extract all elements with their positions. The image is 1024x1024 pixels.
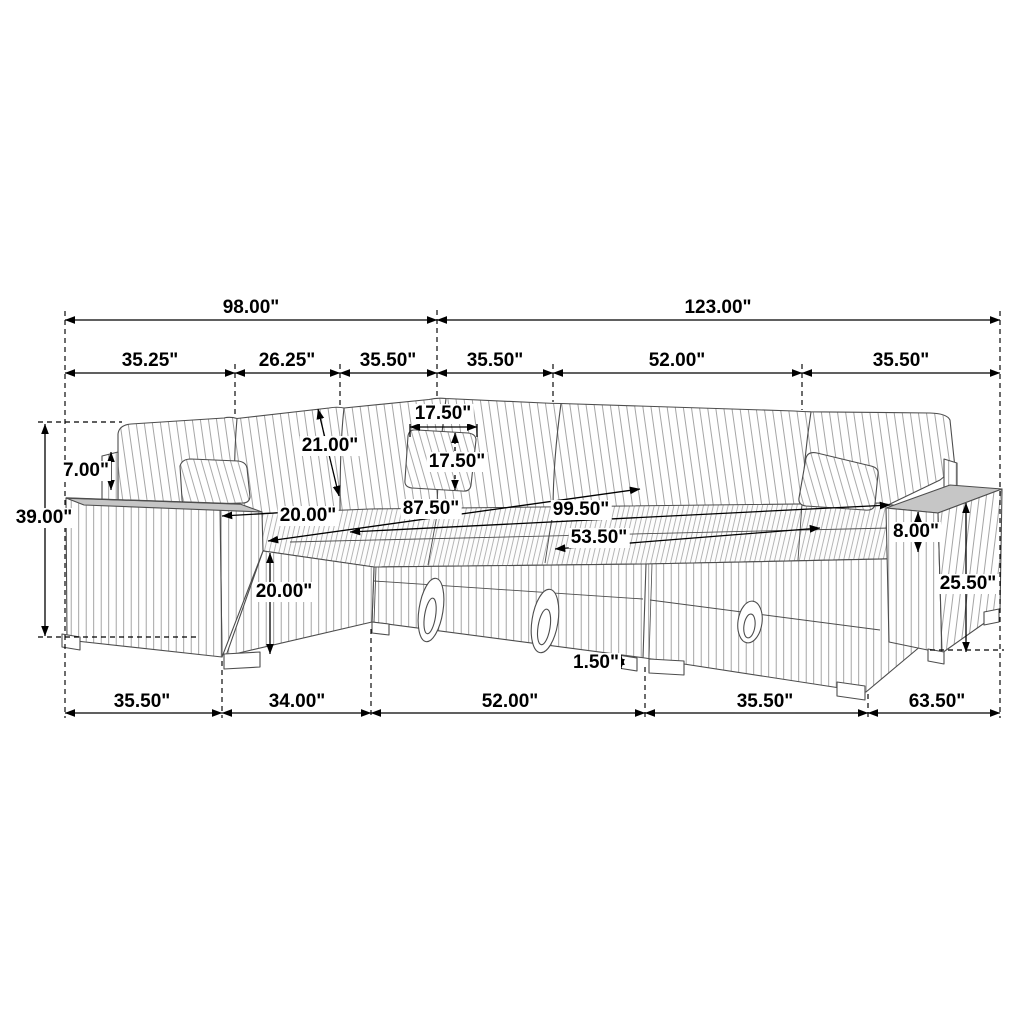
right-arm-front	[886, 508, 942, 653]
sofa-drawing	[62, 398, 1002, 700]
left-arm-front	[66, 498, 222, 657]
dimension-diagram: 98.00"123.00"35.25"26.25"35.50"35.50"52.…	[0, 0, 1024, 1024]
right-arm-side	[938, 489, 1002, 653]
center-pillow	[405, 430, 476, 491]
left-pillow	[180, 459, 250, 505]
sofa-diagram-svg	[0, 0, 1024, 1024]
